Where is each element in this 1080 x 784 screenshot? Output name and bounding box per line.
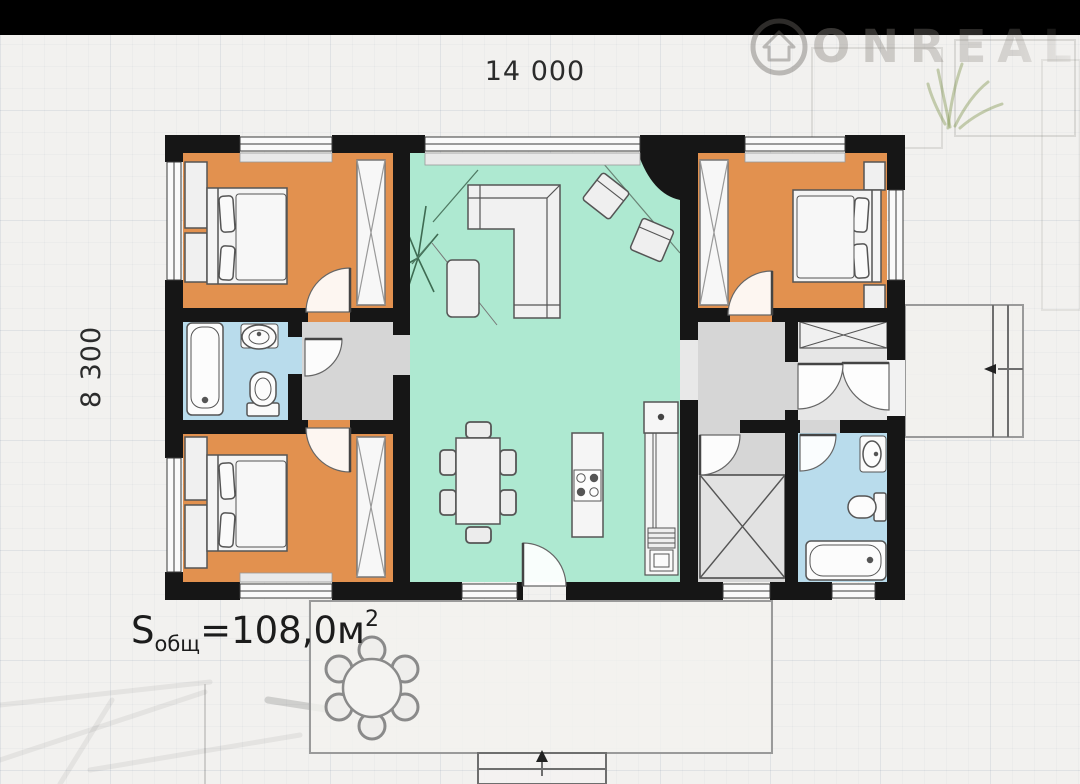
pencil-lines xyxy=(0,682,300,784)
sink-icon-bathroom-2 xyxy=(860,436,886,472)
window-bedroom-3-right xyxy=(889,190,903,280)
dimension-top: 14 000 xyxy=(485,56,585,87)
terrace xyxy=(310,601,772,784)
area-value: =108,0м xyxy=(200,609,365,652)
floor-plan-page: { "watermark": { "brand": "ONREAL", "ico… xyxy=(0,0,1080,784)
entrance-porch xyxy=(905,305,1023,437)
stove-icon xyxy=(574,470,601,501)
toilet-icon-bathroom-1 xyxy=(247,372,279,416)
terrace-steps xyxy=(478,750,606,784)
bathtub-icon-bathroom-1 xyxy=(187,323,223,415)
fridge-icon xyxy=(648,528,675,571)
area-label: Sобщ=108,0м2 xyxy=(131,607,379,656)
wardrobe-icon-bedroom-2 xyxy=(357,437,385,577)
kitchen-island-icon xyxy=(572,433,603,537)
window-living-top xyxy=(425,137,640,151)
tech-unit-icon xyxy=(700,475,785,578)
plant-sketch xyxy=(928,64,1002,128)
entrance-opening xyxy=(887,360,905,416)
window-tech-bottom xyxy=(723,584,770,598)
area-superscript: 2 xyxy=(365,607,379,632)
toilet-icon-bathroom-2 xyxy=(848,493,886,521)
window-bathroom-2-bottom xyxy=(832,584,875,598)
wardrobe-icon-bedroom-1 xyxy=(357,160,385,305)
window-bedroom-1-left xyxy=(167,162,181,280)
area-prefix: S xyxy=(131,609,155,652)
wardrobe-icon-bedroom-3 xyxy=(700,160,728,305)
sink-icon-bathroom-1 xyxy=(241,324,278,349)
window-bedroom-1-top xyxy=(240,137,332,151)
dimension-left: 8 300 xyxy=(76,326,107,408)
watermark-brand: ONREAL xyxy=(812,20,1080,73)
window-living-bottom xyxy=(462,584,517,598)
closet-rail-icon xyxy=(800,322,887,348)
bathtub-icon-bathroom-2 xyxy=(806,541,886,580)
window-bedroom-2-bottom xyxy=(240,584,332,598)
passage-living-hall xyxy=(680,340,698,400)
window-bedroom-2-left xyxy=(167,458,181,572)
area-subscript: общ xyxy=(155,632,201,656)
window-bedroom-3-top xyxy=(745,137,845,151)
passage-living-minihall xyxy=(393,335,410,375)
kitchen-counter-icon xyxy=(644,402,678,575)
kitchen-sink-icon xyxy=(644,402,678,433)
house-icon xyxy=(764,32,794,60)
floor-plan-canvas: 14 000 8 300 Sобщ=108,0м2 ONREAL xyxy=(0,0,1080,784)
